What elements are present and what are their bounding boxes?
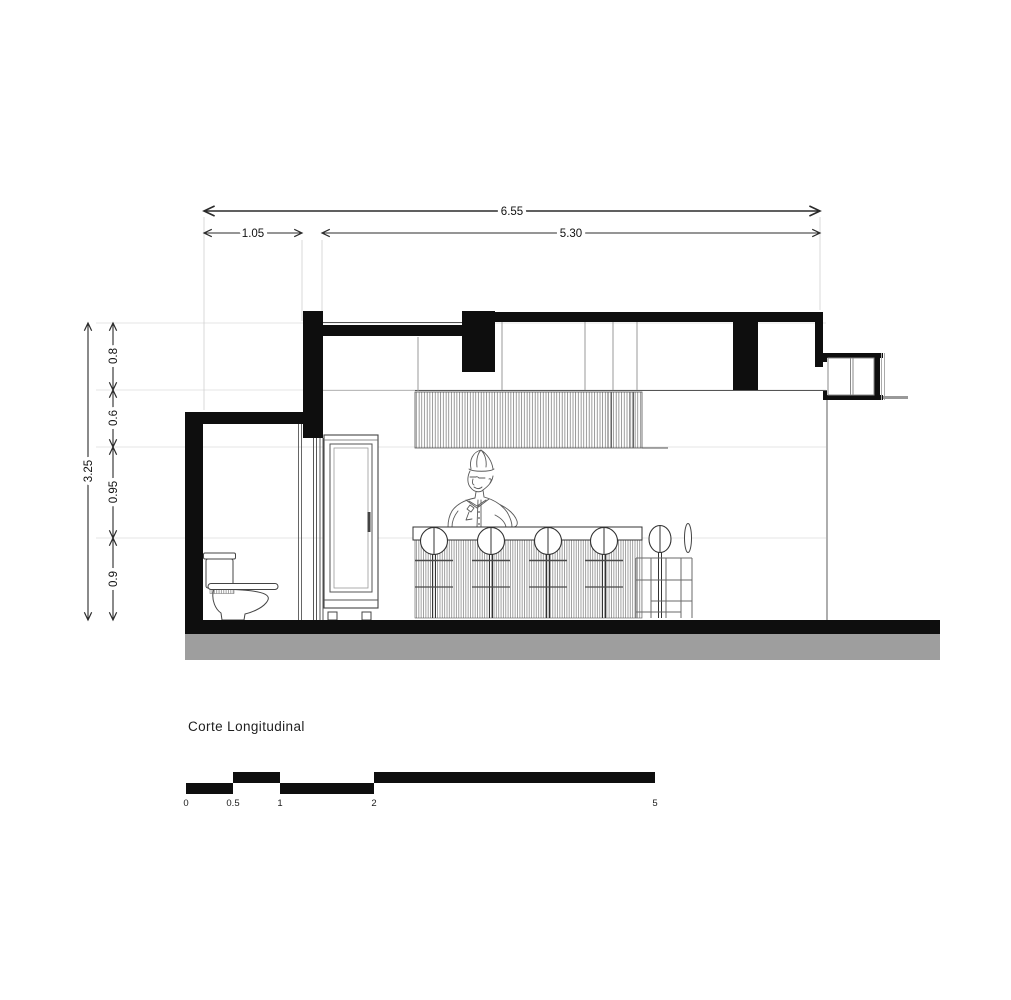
floor-slab <box>185 620 940 634</box>
roof-slab <box>462 312 823 322</box>
scale-bar: 0 0.5 1 2 5 <box>183 772 657 809</box>
ground-band <box>185 634 940 660</box>
dimension-label: 6.55 <box>501 206 523 218</box>
clerestory-window <box>828 353 908 400</box>
dimension-label: 0.6 <box>108 410 120 426</box>
door-lintel-wall <box>303 311 323 438</box>
dimension-label: 0.9 <box>108 571 120 587</box>
dimension-label: 3.25 <box>83 460 95 482</box>
scale-label: 2 <box>371 798 376 809</box>
fridge-handle <box>368 512 371 532</box>
scale-label: 5 <box>652 798 657 809</box>
scale-label: 0.5 <box>226 798 239 809</box>
dimension-label: 1.05 <box>242 228 264 240</box>
roof-column <box>733 322 758 390</box>
toilet <box>204 553 279 620</box>
window-head <box>823 353 883 358</box>
shelf-unit <box>636 558 692 618</box>
fridge-cabinet <box>324 435 378 620</box>
bathroom-left-wall <box>185 412 203 620</box>
dimension-label: 0.95 <box>108 481 120 503</box>
roof-right-drop <box>815 322 823 367</box>
dimension-total-width: 6.55 <box>204 206 820 218</box>
sill-extension <box>883 396 908 399</box>
stool-seat-edge <box>685 524 692 553</box>
chef-figure <box>448 450 517 527</box>
toilet-bowl <box>213 590 269 621</box>
dimension-bathroom-width: 1.05 <box>204 228 302 240</box>
fridge-foot <box>328 612 337 620</box>
scale-label: 1 <box>277 798 282 809</box>
dimension-main-room-width: 5.30 <box>322 228 820 240</box>
window-right-frame <box>874 358 880 395</box>
toilet-seat <box>208 584 278 590</box>
section-drawing-canvas: 6.55 1.05 5.30 3.25 0.8 0.6 0.95 0.9 Cor… <box>0 0 1011 1000</box>
roof-beam-left <box>321 325 462 336</box>
dimension-label: 0.8 <box>108 348 120 364</box>
dimension-label: 5.30 <box>560 228 582 240</box>
dimension-total-height: 3.25 <box>83 323 95 620</box>
drawing-title: Corte Longitudinal <box>188 719 305 734</box>
toilet-tank-lid <box>204 553 236 559</box>
slatted-ceiling-panel <box>415 392 668 448</box>
dimension-height-segments: 0.8 0.6 0.95 0.9 <box>108 323 120 620</box>
bar-stool <box>649 526 671 619</box>
fridge-foot <box>362 612 371 620</box>
bathroom-top-wall <box>185 412 303 424</box>
scale-label: 0 <box>183 798 188 809</box>
window-sill <box>823 395 883 400</box>
architectural-sheet: 6.55 1.05 5.30 3.25 0.8 0.6 0.95 0.9 Cor… <box>0 0 1011 1000</box>
